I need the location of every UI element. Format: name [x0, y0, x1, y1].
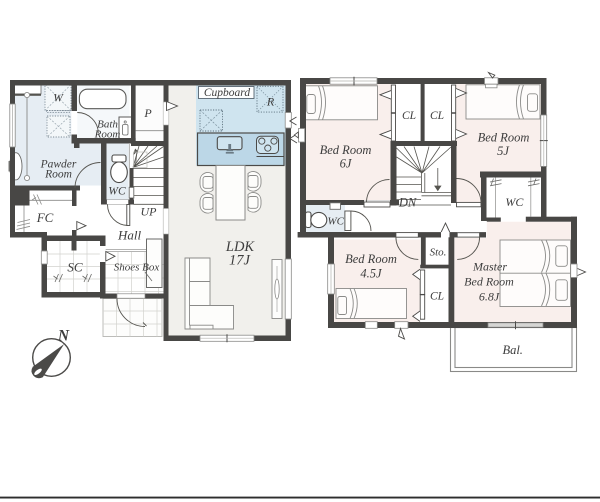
svg-text:DN: DN	[398, 196, 417, 210]
svg-text:UP: UP	[141, 205, 158, 219]
svg-text:W: W	[53, 93, 64, 105]
svg-text:17J: 17J	[229, 253, 251, 269]
svg-text:Room: Room	[44, 169, 72, 181]
svg-text:5J: 5J	[497, 144, 510, 158]
svg-text:R: R	[266, 95, 275, 109]
svg-text:Bed Room: Bed Room	[464, 275, 514, 289]
svg-text:CL: CL	[402, 110, 416, 122]
svg-text:WC: WC	[108, 186, 126, 198]
svg-text:4.5J: 4.5J	[360, 267, 383, 281]
svg-text:Hall: Hall	[117, 228, 142, 243]
svg-text:Bed Room: Bed Room	[320, 143, 372, 157]
svg-text:FC: FC	[36, 210, 54, 225]
svg-text:WC: WC	[505, 195, 524, 209]
svg-text:P: P	[143, 106, 152, 120]
svg-text:SC: SC	[67, 260, 83, 275]
svg-text:CL: CL	[430, 291, 444, 303]
svg-text:Bed Room: Bed Room	[478, 131, 530, 145]
svg-text:Master: Master	[472, 260, 507, 274]
svg-text:Sto.: Sto.	[430, 247, 447, 259]
svg-text:WC: WC	[327, 216, 344, 228]
svg-text:Cupboard: Cupboard	[204, 87, 250, 99]
svg-text:6.8J: 6.8J	[479, 290, 500, 304]
svg-text:6J: 6J	[340, 157, 353, 171]
svg-text:N: N	[57, 328, 70, 345]
svg-text:Bal.: Bal.	[502, 343, 522, 357]
svg-text:CL: CL	[430, 110, 444, 122]
svg-text:Shoes Box: Shoes Box	[114, 262, 160, 274]
svg-text:Room: Room	[94, 129, 121, 141]
svg-text:Bed Room: Bed Room	[345, 252, 397, 266]
